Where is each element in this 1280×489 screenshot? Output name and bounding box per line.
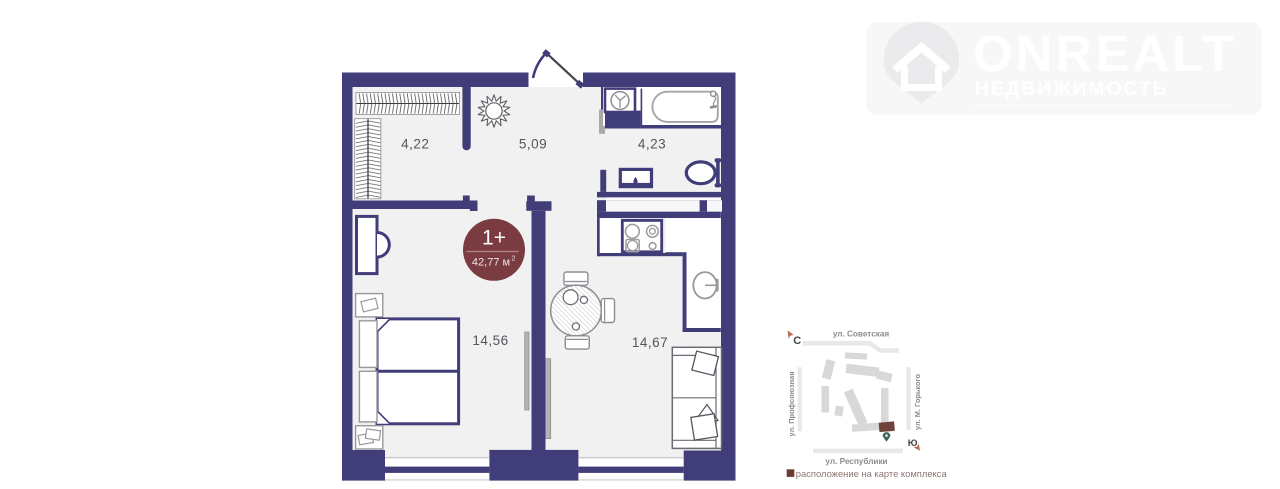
svg-text:С: С — [793, 335, 801, 347]
svg-text:ул. Республики: ул. Республики — [825, 456, 887, 466]
svg-text:4,22: 4,22 — [401, 136, 429, 151]
svg-text:расположение на карте комплекс: расположение на карте комплекса — [796, 468, 948, 479]
svg-text:ул. М. Горького: ул. М. Горького — [913, 373, 922, 430]
svg-text:НЕДВИЖИМОСТЬ: НЕДВИЖИМОСТЬ — [975, 79, 1169, 100]
svg-text:14,67: 14,67 — [632, 335, 668, 350]
svg-text:ул. Советская: ул. Советская — [833, 330, 890, 339]
svg-text:ONREALT: ONREALT — [973, 25, 1237, 82]
svg-text:14,56: 14,56 — [472, 333, 508, 348]
svg-text:2: 2 — [512, 256, 516, 263]
svg-text:ул. Профсоюзная: ул. Профсоюзная — [787, 371, 796, 436]
svg-text:1+: 1+ — [482, 227, 506, 250]
svg-text:4,23: 4,23 — [638, 136, 666, 151]
svg-text:42,77 м: 42,77 м — [472, 257, 510, 269]
svg-text:5,09: 5,09 — [519, 136, 547, 151]
